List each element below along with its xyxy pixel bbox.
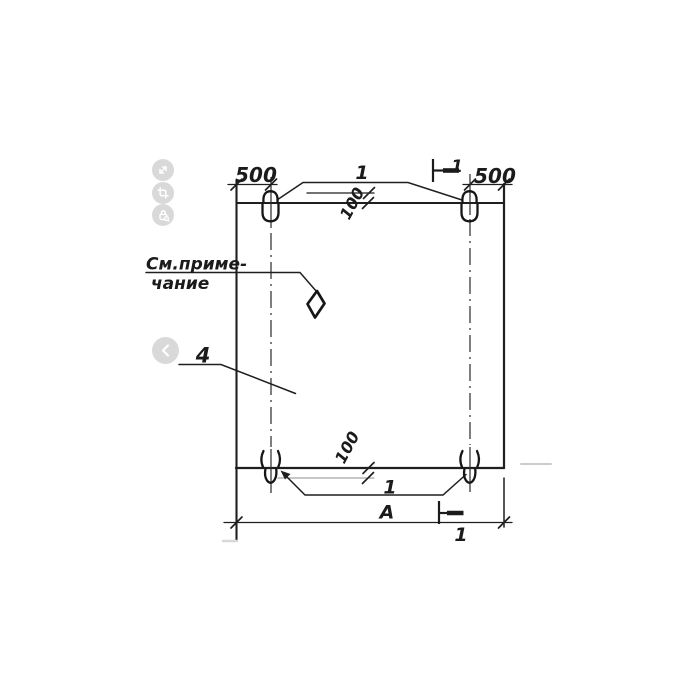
leader-lines <box>146 183 466 496</box>
note-text-line1: См.приме- <box>146 255 247 275</box>
expand-button[interactable] <box>152 159 174 181</box>
lifting-loops <box>261 191 479 483</box>
callout-label-loops-bottom: 1 <box>383 477 396 499</box>
section-mark-bottom <box>439 501 464 524</box>
lock-icon <box>157 209 170 222</box>
expand-icon <box>157 164 169 176</box>
dim-label-100-bottom: 100 <box>331 428 363 466</box>
callout-label-panel: 4 <box>195 344 211 368</box>
chevron-left-icon <box>159 343 172 358</box>
section-label-bottom: 1 <box>454 524 467 546</box>
dimension-lines <box>224 185 512 523</box>
note-text-line2: чание <box>151 274 209 294</box>
crop-button[interactable] <box>152 182 174 204</box>
section-label-top: 1 <box>451 157 463 177</box>
lock-button[interactable] <box>152 204 174 226</box>
crop-icon <box>157 187 169 199</box>
panel-outline <box>236 180 504 540</box>
dimension-ticks <box>231 179 510 528</box>
dim-label-500-left: 500 <box>235 163 277 187</box>
previous-image-button[interactable] <box>152 337 179 364</box>
dim-label-overall-width: А <box>378 502 395 524</box>
dim-label-500-right: 500 <box>474 164 516 188</box>
image-viewer-canvas: 500 500 1 1 100 100 См.приме- чание 4 1 … <box>0 0 700 700</box>
loop-axis-lines <box>271 174 470 493</box>
diamond-symbol <box>308 291 325 318</box>
technical-drawing: 500 500 1 1 100 100 См.приме- чание 4 1 … <box>0 0 700 700</box>
callout-label-loops-top: 1 <box>355 162 368 184</box>
